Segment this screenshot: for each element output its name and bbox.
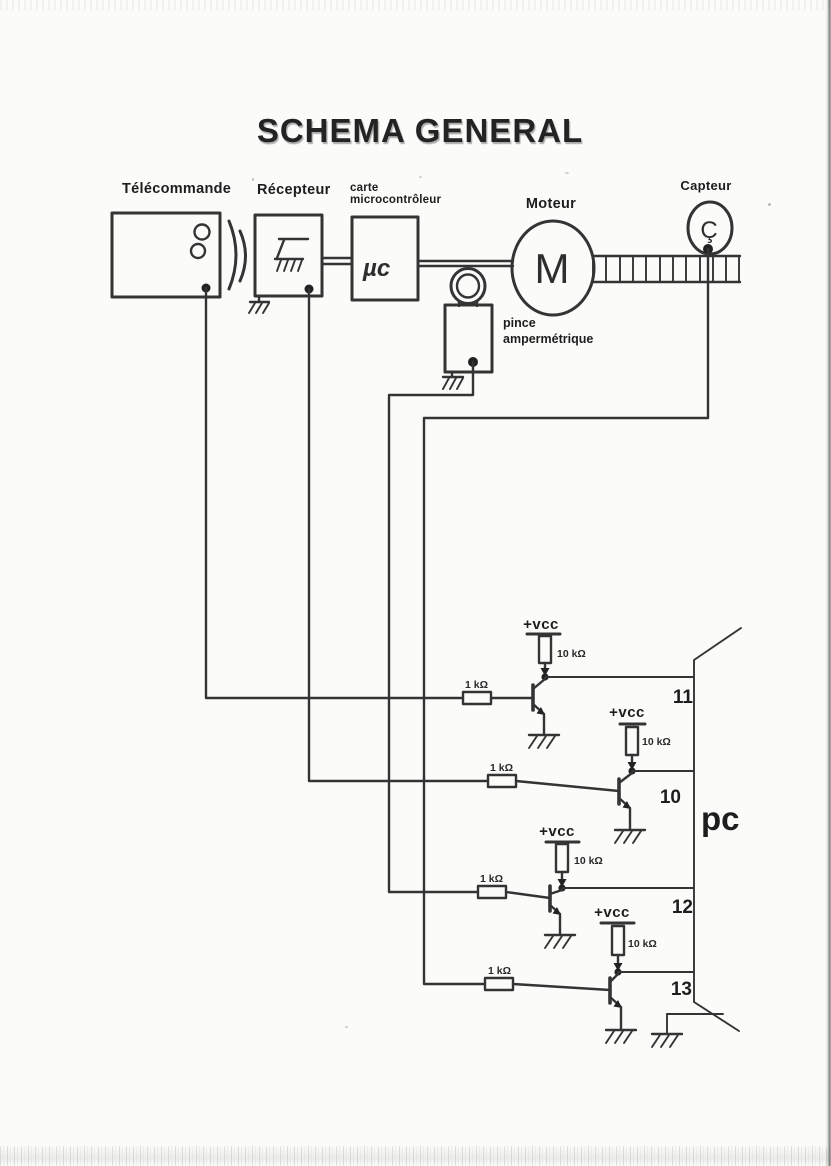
pince-block: pince ampermétrique [443, 269, 593, 390]
remote-button-icon [191, 244, 205, 258]
base-resistor [488, 775, 516, 787]
pullup-resistor [626, 727, 638, 755]
transistor-stage-1: +vcc 10 kΩ 11 1 kΩ [463, 616, 693, 748]
pince-label-1: pince [503, 316, 536, 330]
ground-icon [545, 935, 575, 948]
telecommande-label: Télécommande [122, 181, 231, 197]
vcc-label: +vcc [609, 704, 645, 721]
base-value: 1 kΩ [490, 762, 513, 774]
pullup-value: 10 kΩ [642, 736, 671, 748]
wire-recepteur [309, 289, 488, 781]
transistor-stage-3: +vcc 10 kΩ 12 1 kΩ [478, 823, 693, 948]
ground-icon [249, 296, 269, 313]
pullup-value: 10 kΩ [574, 855, 603, 867]
transistor-stage-4: +vcc 10 kΩ 13 1 kΩ [485, 904, 693, 1043]
scan-speck [419, 176, 422, 178]
wire-capteur [424, 249, 708, 984]
telecommande-block: Télécommande [112, 181, 231, 297]
remote-button-icon [195, 225, 210, 240]
schematic-svg: SCHEMA GENERAL Télécommande Récepteur [0, 0, 831, 1166]
scan-edge-right [825, 0, 831, 1166]
motor-symbol: M [535, 245, 570, 292]
pullup-resistor [556, 844, 568, 872]
scan-speck [768, 203, 771, 206]
pin-number: 12 [672, 897, 693, 918]
scan-noise-bottom [0, 1146, 831, 1166]
page-title: SCHEMA GENERAL [257, 112, 583, 149]
recepteur-label: Récepteur [257, 182, 331, 198]
base-resistor [485, 978, 513, 990]
vcc-label: +vcc [523, 616, 559, 633]
antenna-icon [275, 239, 308, 271]
ground-icon [615, 830, 645, 843]
pullup-value: 10 kΩ [628, 938, 657, 950]
signal-wires [206, 249, 708, 984]
recepteur-box [255, 215, 322, 296]
scanned-schematic-page: SCHEMA GENERAL Télécommande Récepteur [0, 0, 831, 1166]
ground-icon [652, 1034, 682, 1047]
capteur-block: Capteur Ç [680, 178, 732, 254]
pc-label: pc [701, 800, 740, 837]
micro-symbol: µc [362, 255, 390, 282]
radio-waves-icon [229, 221, 246, 289]
carte-micro-label-1: carte [350, 182, 379, 194]
bus-recepteur-micro [322, 258, 352, 264]
pullup-resistor [539, 636, 551, 663]
ground-icon [529, 735, 559, 748]
moteur-label: Moteur [526, 196, 576, 212]
pc-connector: pc [652, 628, 741, 1047]
pin-number: 11 [673, 687, 694, 708]
base-resistor [463, 692, 491, 704]
base-resistor [478, 886, 506, 898]
capteur-label: Capteur [680, 178, 731, 193]
pin-number: 13 [671, 979, 692, 1000]
carte-micro-block: carte microcontrôleur µc [350, 182, 442, 300]
ground-icon [443, 372, 463, 389]
wire-pince [389, 362, 478, 892]
scan-speck [252, 178, 254, 181]
rack-belt [593, 256, 740, 282]
clamp-inner-icon [457, 275, 479, 298]
base-value: 1 kΩ [465, 679, 488, 691]
ground-icon [606, 1030, 636, 1043]
pin-number: 10 [660, 787, 681, 808]
scan-speck [345, 1026, 348, 1028]
vcc-label: +vcc [539, 823, 575, 840]
scan-noise-top [0, 0, 831, 10]
pullup-resistor [612, 926, 624, 955]
transistor-stage-2: +vcc 10 kΩ 10 1 kΩ [488, 704, 693, 843]
recepteur-block: Récepteur [249, 182, 331, 313]
pullup-value: 10 kΩ [557, 648, 586, 660]
base-value: 1 kΩ [488, 965, 511, 977]
moteur-block: Moteur M [512, 196, 594, 315]
vcc-label: +vcc [594, 904, 630, 921]
pince-label-2: ampermétrique [503, 332, 593, 346]
carte-micro-label-2: microcontrôleur [350, 194, 442, 206]
bus-micro-moteur [418, 261, 513, 266]
base-value: 1 kΩ [480, 873, 503, 885]
scan-speck [565, 172, 569, 174]
sensor-symbol: Ç [700, 217, 717, 244]
